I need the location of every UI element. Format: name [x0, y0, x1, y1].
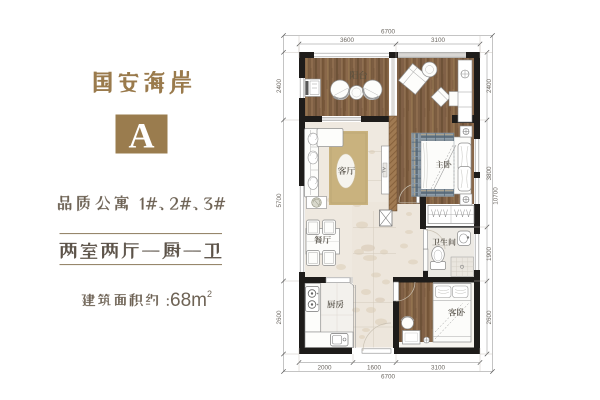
svg-text:2: 2	[207, 289, 212, 299]
svg-text:2400: 2400	[276, 79, 283, 94]
svg-text:3800: 3800	[486, 166, 493, 181]
svg-text:6700: 6700	[381, 29, 396, 36]
svg-text:3100: 3100	[431, 37, 446, 44]
svg-text:68m: 68m	[170, 290, 207, 311]
svg-text:2600: 2600	[486, 310, 493, 325]
svg-text:5700: 5700	[276, 193, 283, 208]
svg-text:TV: TV	[382, 166, 388, 173]
svg-text:6700: 6700	[381, 374, 396, 381]
svg-text:2600: 2600	[276, 310, 283, 325]
svg-text:A: A	[129, 116, 155, 156]
svg-text:2000: 2000	[317, 364, 332, 371]
svg-text:3600: 3600	[340, 37, 355, 44]
svg-text:10700: 10700	[493, 187, 500, 205]
svg-text:1600: 1600	[367, 364, 382, 371]
svg-text:1900: 1900	[486, 247, 493, 262]
svg-text:3100: 3100	[431, 364, 446, 371]
svg-text:2400: 2400	[486, 79, 493, 94]
